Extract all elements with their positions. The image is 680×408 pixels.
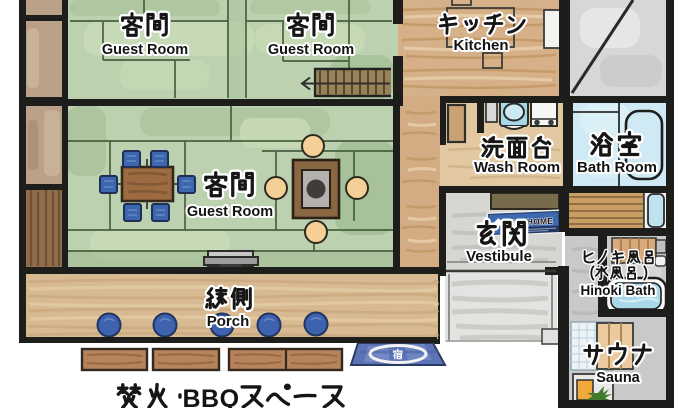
svg-text:Guest Room: Guest Room (268, 42, 354, 58)
svg-text:Wash Room: Wash Room (474, 159, 560, 176)
svg-text:Kitchen: Kitchen (453, 37, 508, 54)
svg-text:BBQ: BBQ (182, 385, 239, 408)
svg-text:Sauna: Sauna (596, 370, 640, 386)
svg-text:Hinoki Bath: Hinoki Bath (580, 283, 655, 298)
svg-text:Porch: Porch (207, 313, 250, 330)
svg-text:Guest Room: Guest Room (187, 204, 273, 220)
svg-text:Bath Room: Bath Room (577, 159, 657, 176)
svg-text:Guest Room: Guest Room (102, 42, 188, 58)
svg-text:Vestibule: Vestibule (466, 248, 532, 265)
